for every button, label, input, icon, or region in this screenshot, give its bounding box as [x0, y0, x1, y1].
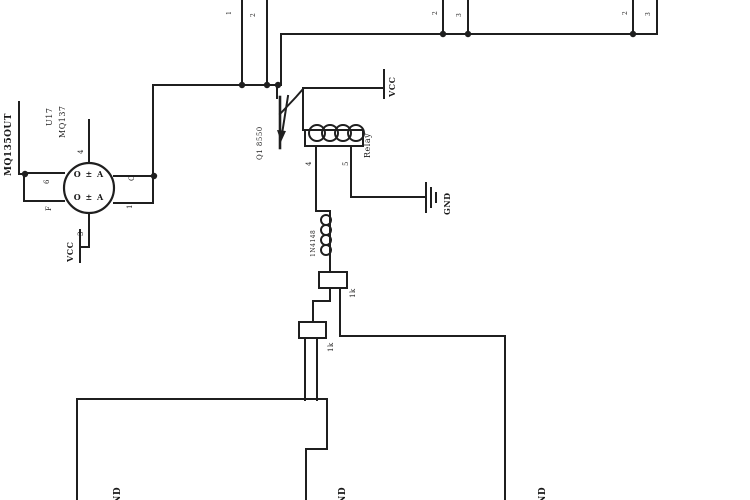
- relay-box: [305, 130, 363, 146]
- header2-pin-a: 2: [433, 11, 439, 15]
- junction-dot: [22, 171, 28, 177]
- sensor-pin-bottom-label: 3: [78, 231, 85, 236]
- diode-label: 1N4148: [311, 230, 317, 257]
- junction-dot: [440, 31, 446, 37]
- relay-pin-left-label: 4: [306, 161, 313, 166]
- gnd-label-relay: GND: [443, 192, 451, 215]
- sensor-pin-right-top-label: C: [129, 175, 136, 181]
- resistor1-value: 1k: [350, 288, 357, 298]
- vcc-label-right: VCC: [388, 77, 396, 97]
- sensor-pin-top-label: 4: [78, 149, 85, 154]
- gnd-label-3: GND: [539, 487, 548, 500]
- header3-pin-b: 3: [646, 12, 652, 16]
- transistor-collector: [280, 89, 303, 114]
- schematic-wires: [0, 0, 750, 500]
- junction-dot: [465, 31, 471, 37]
- sensor-part-number: MQ137: [59, 105, 67, 138]
- junction-dots: [22, 31, 636, 179]
- transistor-label: Q1 8550: [257, 126, 264, 160]
- junction-dot: [275, 82, 281, 88]
- resistor2-value: 1k: [328, 342, 335, 352]
- junction-dot: [151, 173, 157, 179]
- header2-pin-b: 3: [457, 13, 463, 17]
- relay-pin-right-label: 5: [343, 161, 350, 166]
- sensor-pin-left-bottom-label: F: [46, 206, 53, 211]
- gnd-label-1: GND: [114, 487, 123, 500]
- resistor1-box: [319, 272, 347, 288]
- sensor-inner-row-2: O ± A: [66, 193, 112, 201]
- sensor-pin-left-top-label: 6: [44, 179, 51, 184]
- transistor-emitter: [282, 96, 288, 134]
- net-label-mq135out: MQ135OUT: [5, 113, 14, 176]
- schematic-canvas: MQ135OUT U17 MQ137 4 6 F C 1 3 O ± A O ±…: [0, 0, 750, 500]
- wire-group: [19, 0, 657, 500]
- junction-dot: [239, 82, 245, 88]
- header3-pin-a: 2: [623, 11, 629, 15]
- relay-label: Relay: [364, 133, 372, 158]
- vcc-label-sensor: VCC: [66, 242, 74, 262]
- junction-dot: [264, 82, 270, 88]
- header1-pin-a: 1: [227, 11, 233, 15]
- sensor-pin-right-bottom-label: 1: [127, 204, 134, 209]
- sensor-inner-row-1: O ± A: [66, 170, 112, 178]
- header1-pin-b: 2: [251, 13, 257, 17]
- gnd-label-2: GND: [339, 487, 348, 500]
- junction-dot: [630, 31, 636, 37]
- resistor2-box: [299, 322, 326, 338]
- sensor-refdes: U17: [46, 108, 54, 126]
- transistor-emitter-arrow: [277, 130, 286, 142]
